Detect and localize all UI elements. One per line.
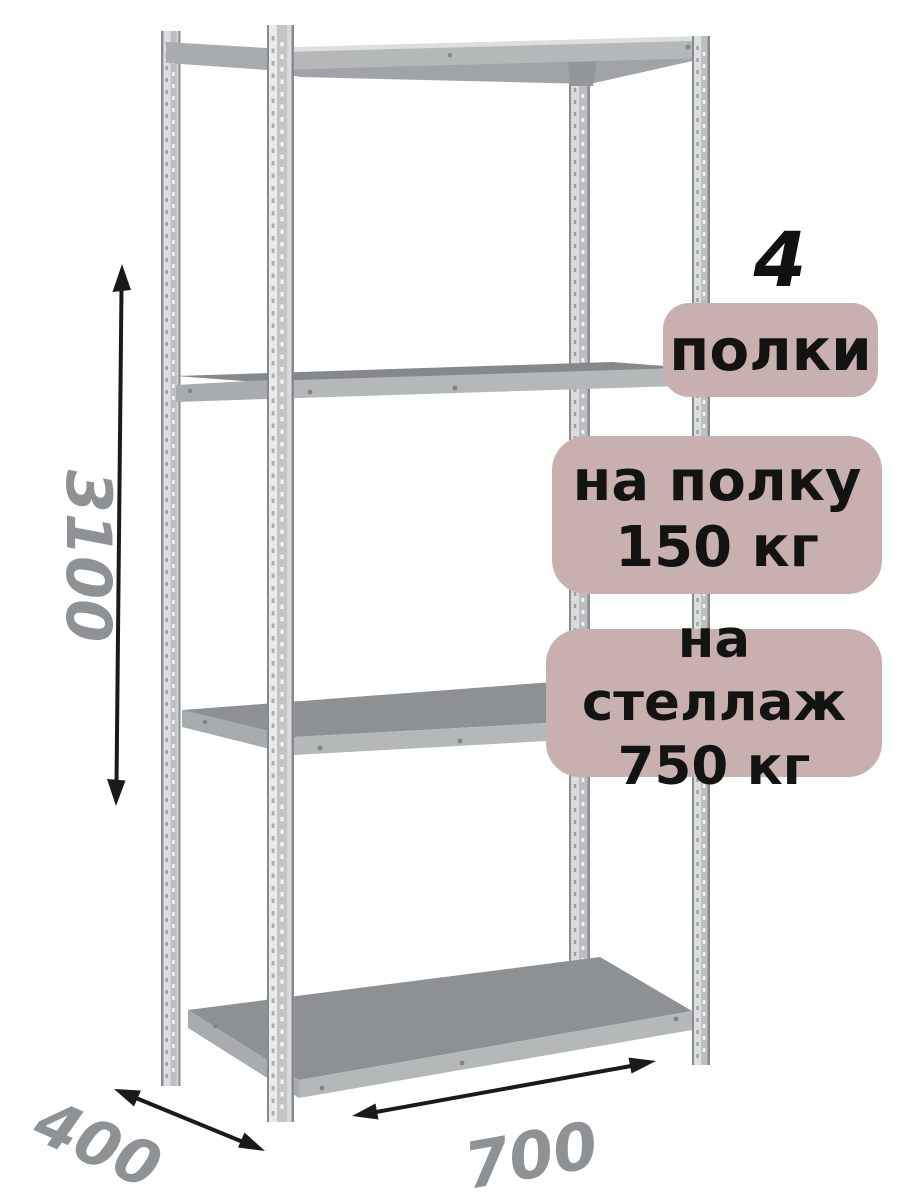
width-dimension-label: 700 [459,1109,603,1200]
rivet [320,1086,325,1091]
rivet [674,1017,679,1022]
rivet [460,1061,465,1066]
rivet [203,720,207,724]
total-load-badge: на стеллаж 750 кг [546,629,882,777]
rivet [448,53,452,57]
total-load-line1: на стеллаж [546,608,882,735]
shelf-count-number: 4 [728,222,832,298]
post-back-left [161,31,181,1086]
shelf-1 [166,36,710,86]
rivet [188,389,192,393]
product-image: 3100 700 400 4 полки на полку 150 кг на … [0,0,900,1200]
per-shelf-load-line1: на полку [573,449,862,515]
rivet [686,45,691,50]
depth-dimension-label: 400 [23,1084,172,1200]
per-shelf-load-line2: 150 кг [615,515,819,581]
height-dimension-label: 3100 [52,470,125,643]
total-load-line2: 750 кг [618,735,811,799]
rack-illustration: 3100 700 400 [0,0,900,1200]
shelf-count-label: полки [669,316,871,384]
rivet [318,746,323,751]
rivet [308,390,313,395]
per-shelf-load-badge: на полку 150 кг [552,436,882,594]
shelf-side-face [166,42,267,70]
shelf-2 [176,362,710,402]
rivet [458,739,463,744]
shelf-4 [188,957,692,1098]
rivet [213,1024,217,1028]
rivet [453,386,458,391]
shelf-count-badge: полки [663,303,878,397]
post-front-left [267,25,294,1122]
